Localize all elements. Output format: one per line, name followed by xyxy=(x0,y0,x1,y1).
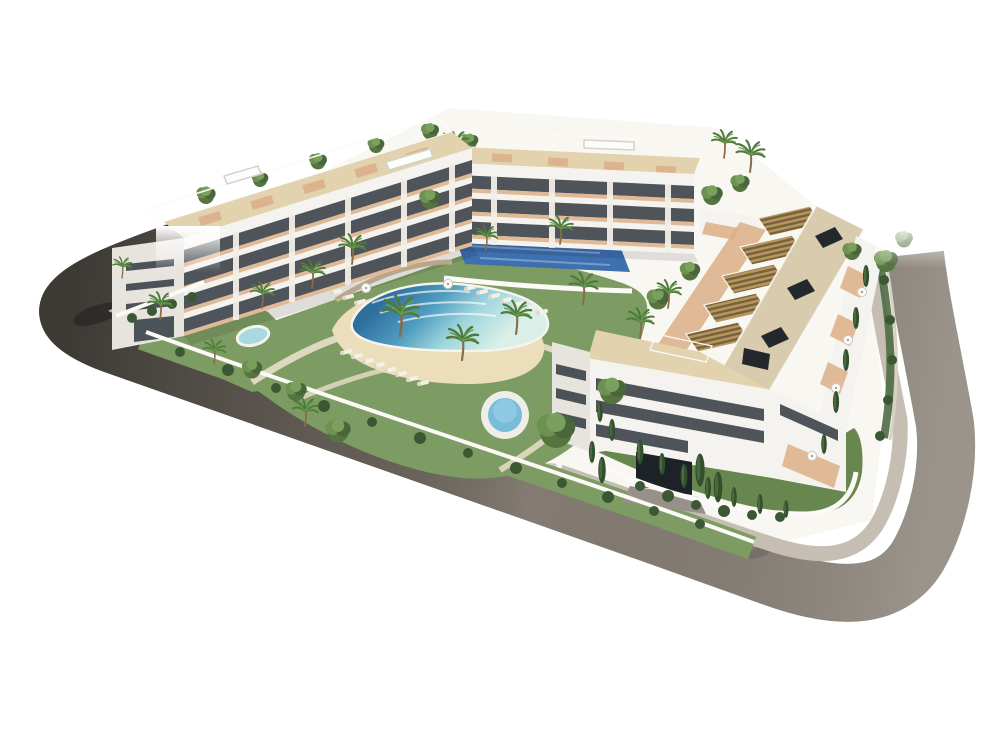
architectural-render: Aerial 3D architectural rendering of a w… xyxy=(0,0,1008,736)
rooftop-frame xyxy=(584,140,634,150)
jacuzzi-highlight xyxy=(493,399,517,423)
road-fade-top-right xyxy=(875,218,947,268)
render-canvas: Aerial 3D architectural rendering of a w… xyxy=(0,0,1008,736)
facade-windows xyxy=(436,174,694,249)
road-fade-top-left xyxy=(156,226,220,272)
